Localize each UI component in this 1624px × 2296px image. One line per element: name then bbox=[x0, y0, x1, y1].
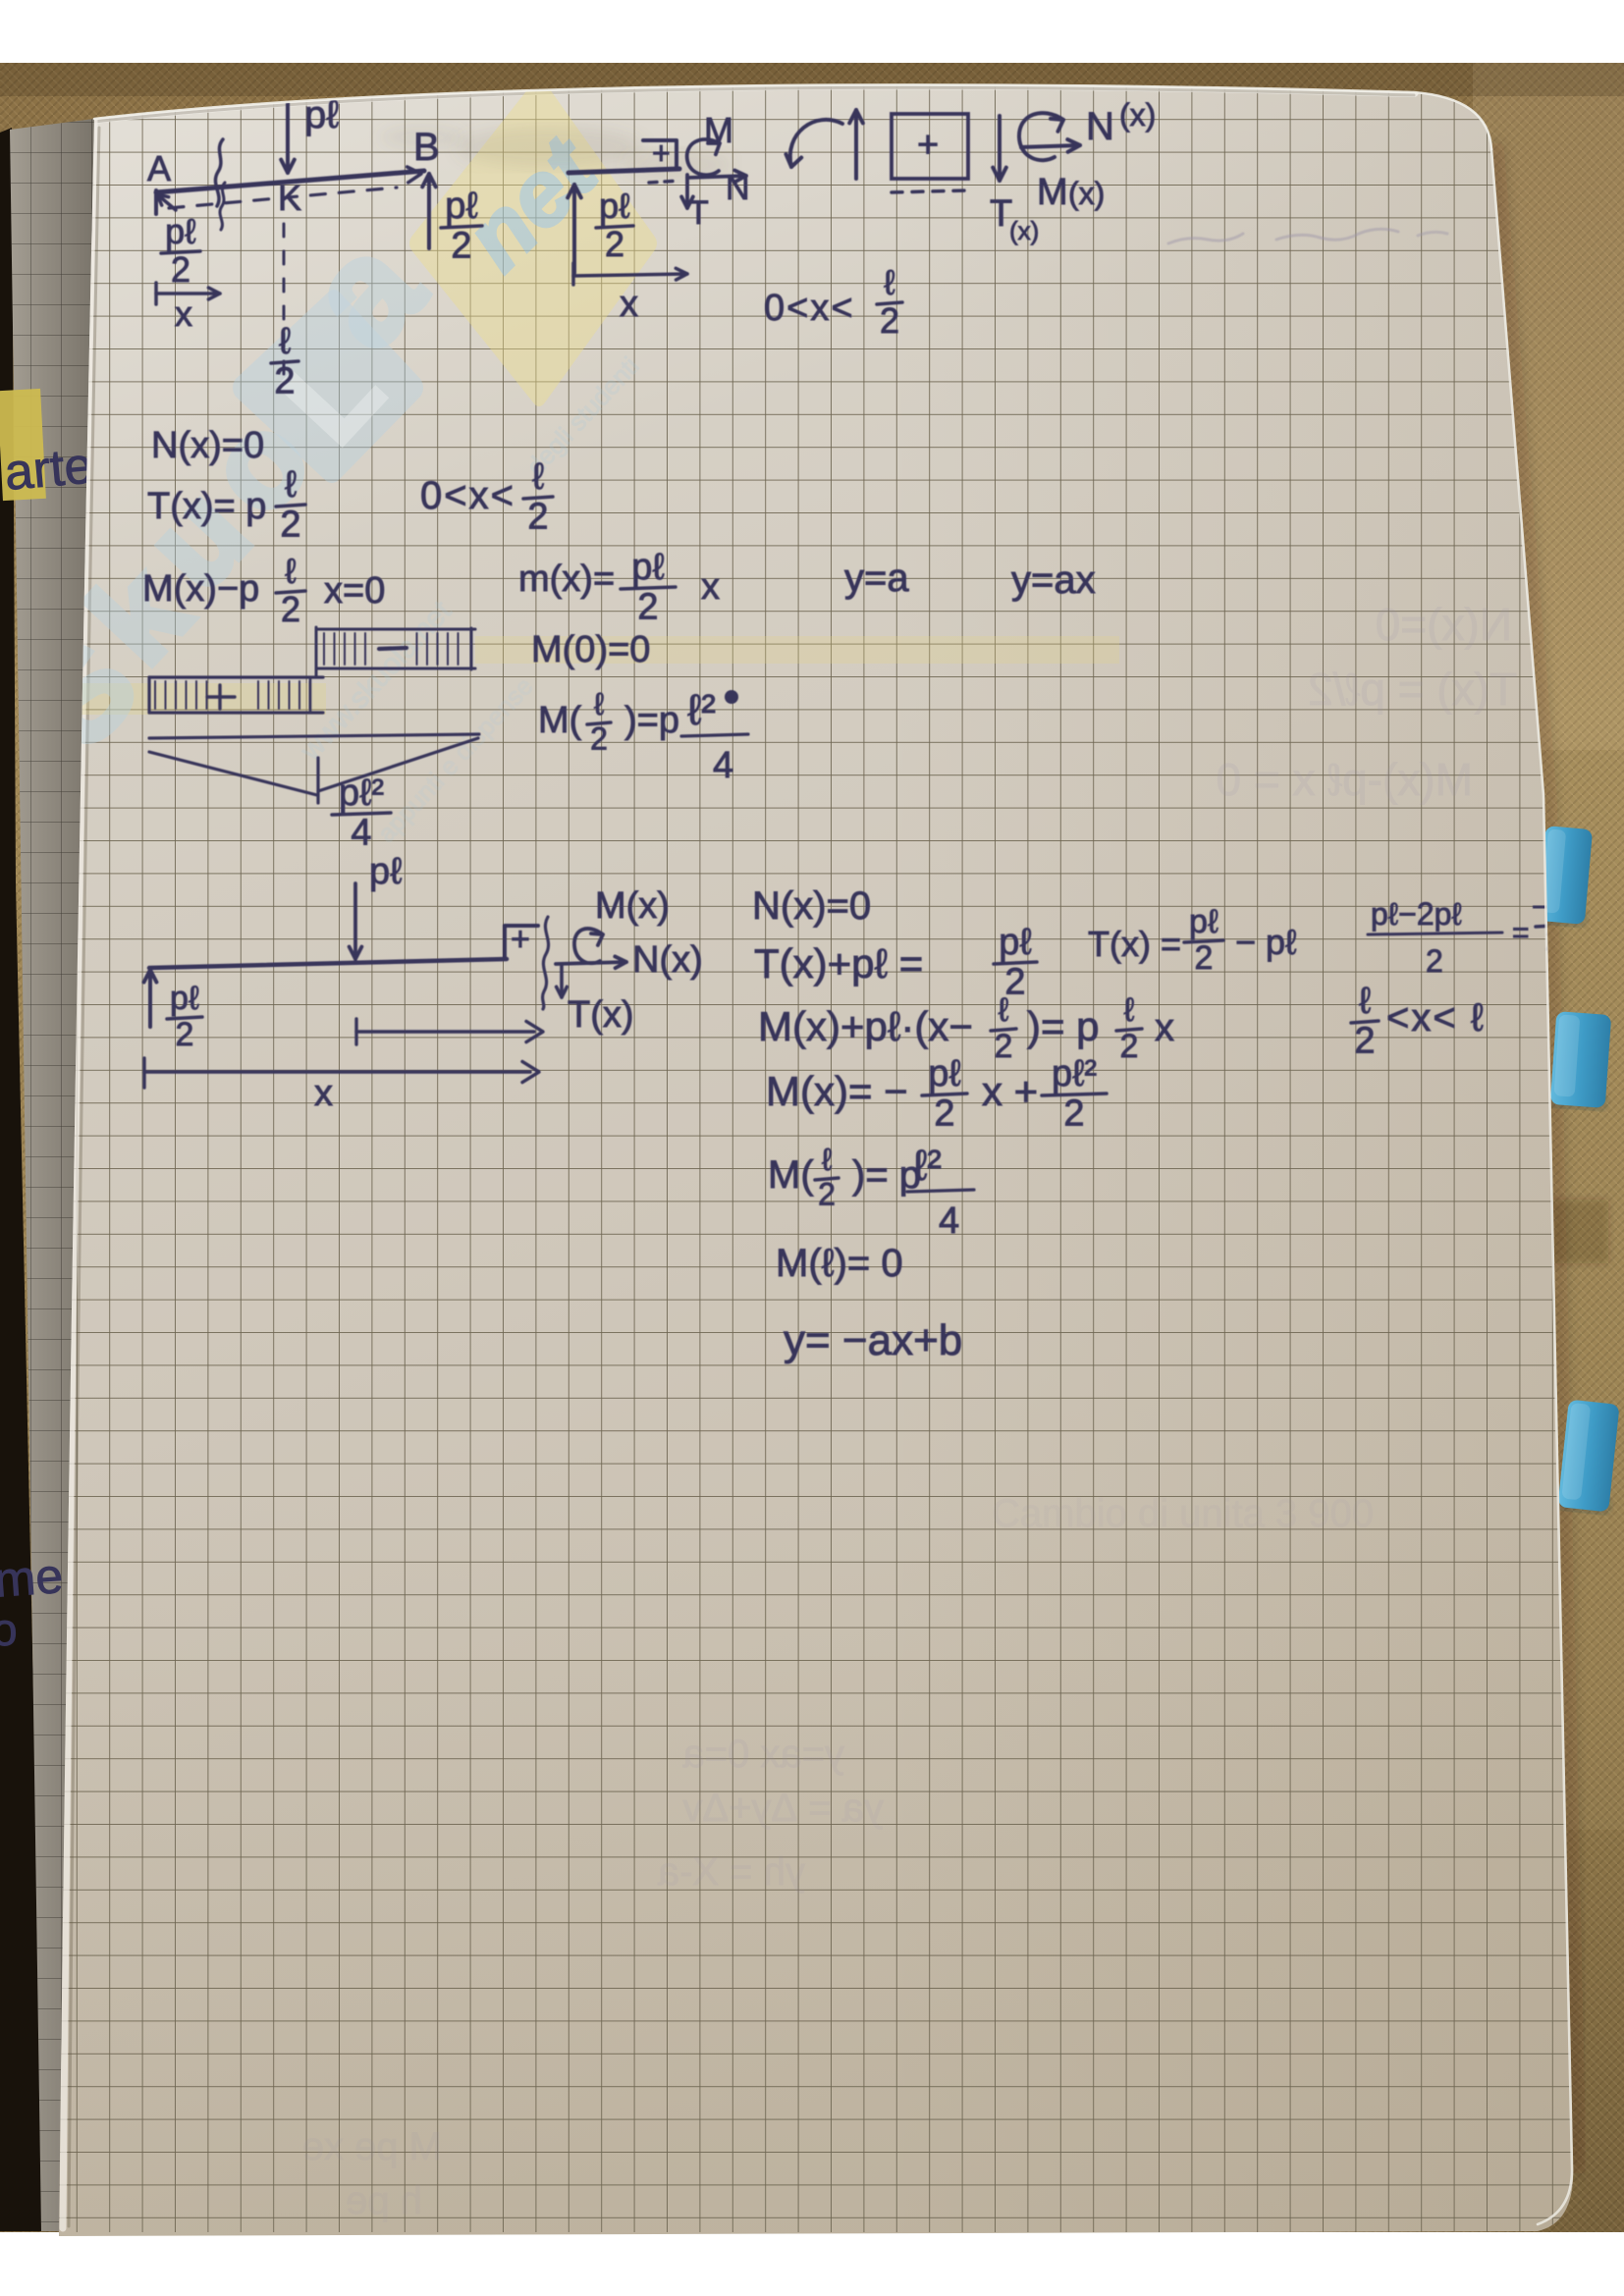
svg-text:pℓ: pℓ bbox=[999, 922, 1031, 963]
svg-text:ℓ: ℓ bbox=[1359, 981, 1371, 1022]
svg-text:m(x)=: m(x)= bbox=[518, 559, 615, 600]
svg-text:yh = X-a: yh = X-a bbox=[657, 1850, 805, 1894]
svg-text:2: 2 bbox=[1195, 939, 1214, 977]
svg-text:2: 2 bbox=[280, 504, 300, 545]
svg-text:2: 2 bbox=[451, 225, 471, 266]
svg-text:2: 2 bbox=[171, 249, 190, 290]
svg-text:)= p: )= p bbox=[1027, 1003, 1100, 1049]
svg-text:2: 2 bbox=[1426, 943, 1443, 979]
svg-text:<x< ℓ: <x< ℓ bbox=[1386, 996, 1486, 1040]
svg-text:M(x)−p: M(x)−p bbox=[142, 568, 259, 610]
svg-text:x: x bbox=[701, 566, 720, 608]
svg-text:x: x bbox=[620, 284, 638, 325]
svg-text:M: M bbox=[1037, 172, 1068, 213]
svg-text:=: = bbox=[1512, 917, 1530, 949]
svg-text:T(x)+pℓ =: T(x)+pℓ = bbox=[754, 940, 923, 987]
svg-text:− pℓ: − pℓ bbox=[1235, 922, 1297, 962]
svg-text:+: + bbox=[652, 135, 671, 171]
svg-text:2: 2 bbox=[281, 589, 300, 629]
svg-text:2: 2 bbox=[274, 360, 295, 401]
svg-text:ℓ²: ℓ² bbox=[913, 1142, 942, 1190]
svg-text:y=ax: y=ax bbox=[1011, 559, 1096, 602]
svg-text:ℓ: ℓ bbox=[285, 551, 297, 591]
svg-text:M(x)= −: M(x)= − bbox=[766, 1068, 908, 1114]
svg-text:ℓ: ℓ bbox=[884, 262, 895, 302]
svg-text:x: x bbox=[314, 1073, 333, 1114]
svg-text:N(x)=0: N(x)=0 bbox=[752, 884, 871, 928]
svg-text:0<x<: 0<x< bbox=[764, 288, 855, 329]
svg-text:ℓ: ℓ bbox=[999, 991, 1009, 1029]
svg-text:M(x)-pℓ x = 0: M(x)-pℓ x = 0 bbox=[1216, 754, 1473, 805]
svg-text:M(: M( bbox=[538, 700, 582, 741]
svg-text:N(x)=0: N(x)=0 bbox=[1376, 599, 1512, 650]
svg-text:2: 2 bbox=[818, 1177, 836, 1212]
svg-text:N: N bbox=[726, 170, 750, 207]
svg-text:)=p: )=p bbox=[624, 700, 679, 741]
svg-text:Cambio di unita 3 900: Cambio di unita 3 900 bbox=[992, 1492, 1374, 1535]
svg-text:M: M bbox=[704, 110, 733, 150]
svg-text:+: + bbox=[917, 125, 939, 166]
svg-text:pℓ: pℓ bbox=[928, 1053, 960, 1095]
svg-text:2: 2 bbox=[880, 300, 899, 341]
svg-text:o: o bbox=[0, 1604, 18, 1655]
svg-text:pℓ: pℓ bbox=[165, 211, 196, 251]
svg-text:(x): (x) bbox=[1009, 216, 1039, 245]
svg-text:2: 2 bbox=[605, 224, 624, 264]
svg-text:ℓ²: ℓ² bbox=[687, 686, 716, 734]
svg-text:T(x) =: T(x) = bbox=[1088, 924, 1181, 964]
svg-text:B: B bbox=[413, 126, 440, 169]
svg-text:N(x): N(x) bbox=[632, 939, 703, 981]
svg-text:ℓ: ℓ bbox=[285, 464, 297, 506]
svg-text:N(x)=0: N(x)=0 bbox=[151, 425, 264, 466]
svg-text:pℓ: pℓ bbox=[170, 980, 199, 1017]
svg-text:h pe: h pe bbox=[346, 2179, 422, 2222]
svg-text:N: N bbox=[1086, 105, 1114, 148]
svg-text:4: 4 bbox=[713, 745, 733, 786]
svg-text:M pe xe: M pe xe bbox=[302, 2125, 442, 2168]
svg-text:2: 2 bbox=[527, 496, 548, 537]
svg-text:arte: arte bbox=[2, 437, 94, 502]
svg-text:T(x): T(x) bbox=[568, 994, 634, 1036]
svg-text:y=ax 0=a: y=ax 0=a bbox=[682, 1733, 844, 1776]
svg-text:ℓ: ℓ bbox=[1124, 991, 1135, 1029]
svg-text:M(x)+pℓ·(x−: M(x)+pℓ·(x− bbox=[758, 1003, 973, 1049]
svg-text:T: T bbox=[688, 194, 709, 232]
svg-text:2: 2 bbox=[1354, 1020, 1375, 1061]
svg-text:M(: M( bbox=[768, 1153, 814, 1197]
svg-text:ℓ: ℓ bbox=[279, 321, 291, 362]
svg-text:pℓ: pℓ bbox=[599, 186, 630, 226]
svg-text:0<x<: 0<x< bbox=[420, 474, 515, 517]
svg-text:+: + bbox=[511, 921, 530, 958]
svg-text:K: K bbox=[278, 178, 301, 218]
svg-text:x: x bbox=[175, 294, 192, 334]
svg-text:pℓ²: pℓ² bbox=[339, 773, 384, 814]
svg-text:pℓ: pℓ bbox=[369, 851, 402, 892]
svg-text:M(ℓ)= 0: M(ℓ)= 0 bbox=[776, 1242, 903, 1285]
svg-text:A: A bbox=[147, 148, 171, 188]
svg-text:M(x): M(x) bbox=[595, 885, 670, 927]
svg-text:ℓ: ℓ bbox=[594, 686, 604, 721]
svg-text:pℓ: pℓ bbox=[1189, 903, 1218, 940]
svg-text:2: 2 bbox=[934, 1093, 954, 1134]
svg-text:4: 4 bbox=[351, 812, 371, 853]
svg-text:(x): (x) bbox=[1119, 97, 1156, 133]
svg-text:2: 2 bbox=[995, 1028, 1013, 1065]
svg-text:T(x)= p: T(x)= p bbox=[147, 486, 266, 527]
svg-text:ya = Δy+Δv: ya = Δy+Δv bbox=[682, 1787, 884, 1830]
svg-text:2: 2 bbox=[1120, 1028, 1139, 1065]
svg-text:me: me bbox=[0, 1548, 65, 1608]
svg-text:4: 4 bbox=[939, 1201, 959, 1242]
svg-text:pℓ: pℓ bbox=[631, 547, 664, 588]
svg-text:y=a: y=a bbox=[844, 557, 909, 600]
svg-text:ℓ: ℓ bbox=[822, 1142, 832, 1177]
svg-text:(x): (x) bbox=[1068, 176, 1105, 211]
svg-text:x +: x + bbox=[982, 1068, 1038, 1114]
svg-text:x: x bbox=[1155, 1006, 1174, 1049]
svg-text:2: 2 bbox=[637, 586, 658, 627]
svg-text:pℓ²: pℓ² bbox=[1052, 1053, 1097, 1095]
svg-text:pℓ−2pℓ: pℓ−2pℓ bbox=[1371, 896, 1462, 932]
svg-text:x=0: x=0 bbox=[324, 570, 385, 612]
svg-text:2: 2 bbox=[590, 721, 608, 757]
svg-text:y= −ax+b: y= −ax+b bbox=[784, 1316, 962, 1364]
svg-text:2: 2 bbox=[1063, 1093, 1084, 1134]
svg-text:pℓ: pℓ bbox=[445, 186, 477, 227]
svg-text:2: 2 bbox=[176, 1016, 194, 1053]
svg-text:T(x) = pℓ/2: T(x) = pℓ/2 bbox=[1308, 664, 1517, 715]
svg-text:M(0)=0: M(0)=0 bbox=[531, 629, 650, 670]
svg-text:ℓ: ℓ bbox=[532, 456, 544, 498]
